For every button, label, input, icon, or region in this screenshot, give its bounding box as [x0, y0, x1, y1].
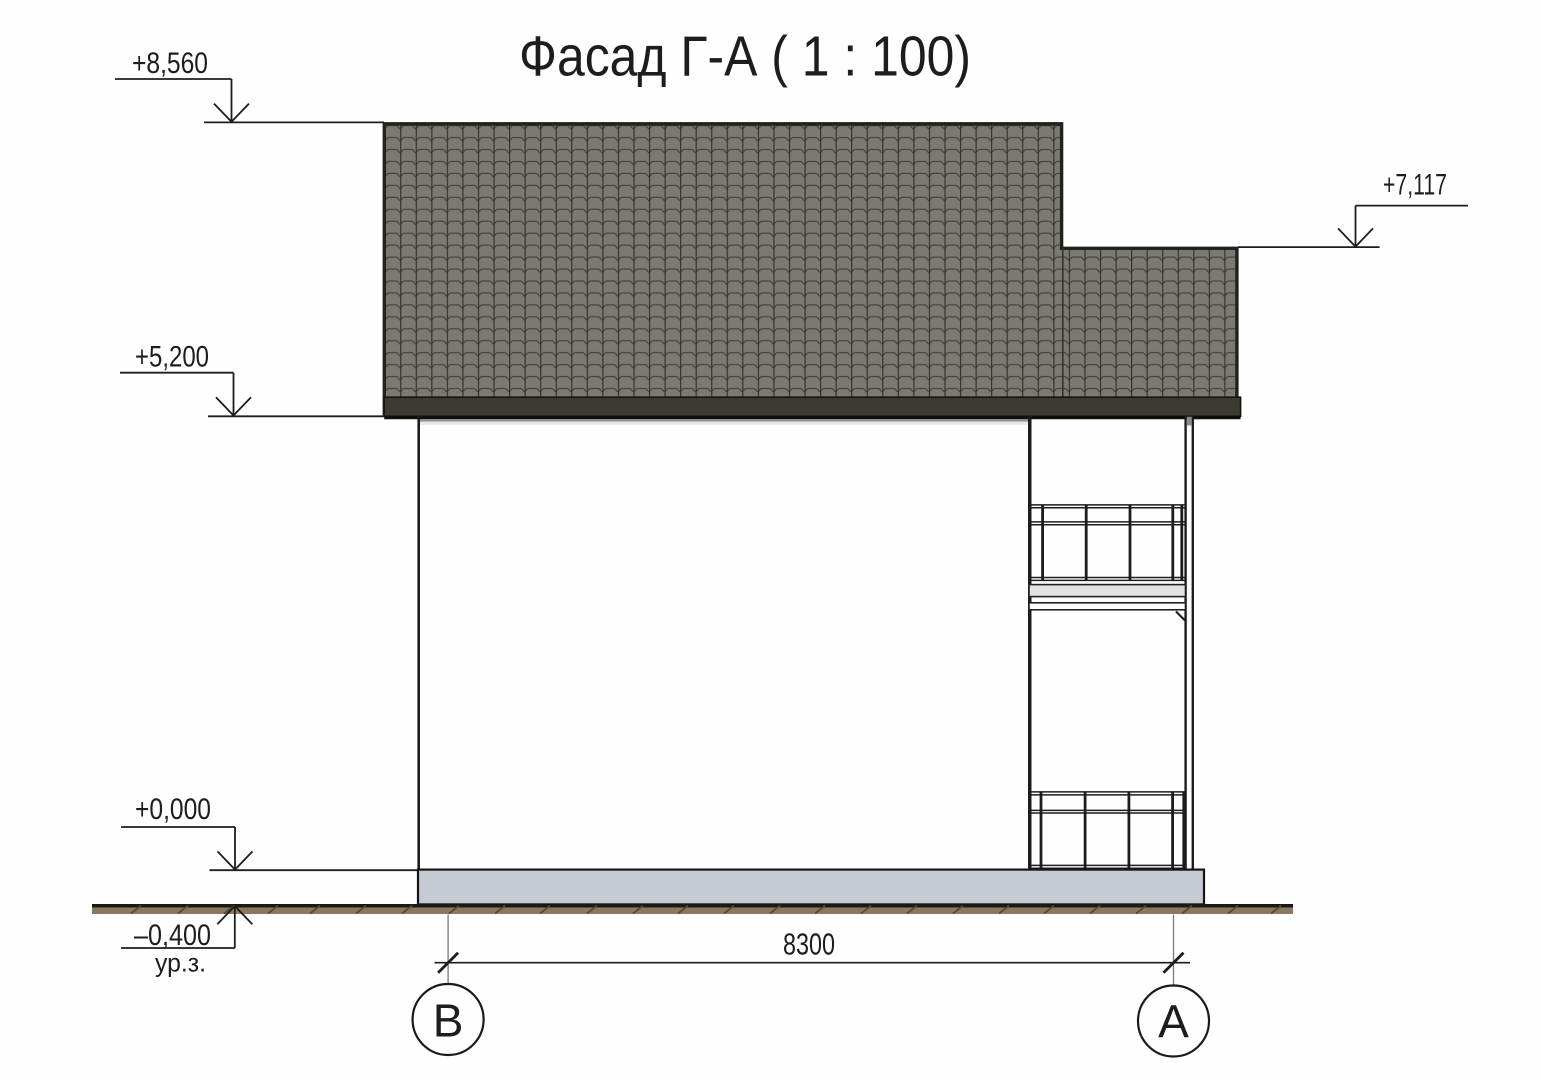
svg-text:+0,000: +0,000 [135, 793, 211, 826]
svg-text:В: В [433, 995, 464, 1047]
svg-text:Фасад Г-А ( 1 : 100): Фасад Г-А ( 1 : 100) [519, 25, 971, 89]
svg-text:А: А [1158, 996, 1189, 1048]
svg-text:+7,117: +7,117 [1383, 169, 1447, 202]
svg-text:ур.з.: ур.з. [155, 948, 206, 978]
svg-text:8300: 8300 [783, 927, 835, 962]
svg-text:+8,560: +8,560 [132, 47, 208, 80]
svg-text:+5,200: +5,200 [135, 341, 209, 374]
